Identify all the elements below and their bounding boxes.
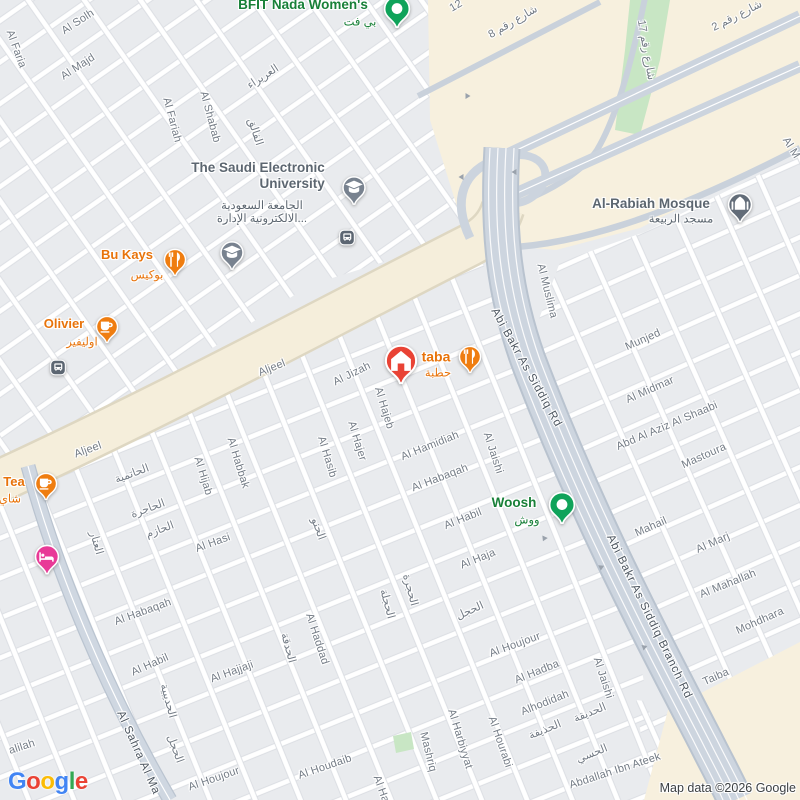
google-logo-letter: G <box>8 768 26 795</box>
google-logo-letter: g <box>55 768 69 795</box>
google-logo[interactable]: Google <box>8 768 88 796</box>
woosh-marker[interactable] <box>549 492 576 531</box>
map-attribution: Map data ©2026 Google <box>660 781 796 795</box>
al-rabiah-mosque-marker[interactable] <box>728 193 753 229</box>
taba-marker[interactable] <box>459 346 482 380</box>
tea-marker[interactable] <box>35 473 58 507</box>
map-canvas[interactable]: Al SolhAl MajdAl FariaAl FariahAl Shabab… <box>0 0 800 800</box>
saudi-electronic-university-label[interactable]: The Saudi ElectronicUniversity <box>191 160 325 192</box>
bu-kays-label[interactable]: Bu Kays <box>101 247 153 263</box>
olivier-label[interactable]: Olivier <box>44 316 84 332</box>
saudi-electronic-university-2-marker[interactable] <box>220 241 244 276</box>
google-logo-letter: e <box>75 768 88 795</box>
google-logo-letter: o <box>40 768 54 795</box>
roads-layer <box>0 0 800 800</box>
hotel-marker[interactable] <box>35 545 60 581</box>
bfit-nada-womens-marker[interactable] <box>384 0 411 34</box>
bfit-nada-womens-label[interactable]: BFIT Nada Women's <box>238 0 368 13</box>
attribution-text: Map data ©2026 Google <box>660 781 796 795</box>
olivier-marker[interactable] <box>96 316 119 350</box>
bu-kays-marker[interactable] <box>164 249 187 283</box>
google-logo-letter: o <box>26 768 40 795</box>
al-rabiah-mosque-label[interactable]: Al-Rabiah Mosque <box>592 196 710 212</box>
home-marker[interactable] <box>385 345 418 391</box>
woosh-label[interactable]: Woosh <box>492 495 537 511</box>
bus-station-1-marker[interactable] <box>339 230 355 251</box>
bus-station-2-marker[interactable] <box>50 360 66 381</box>
tea-label[interactable]: Tea <box>3 474 24 490</box>
saudi-electronic-university-marker[interactable] <box>342 176 366 211</box>
taba-label[interactable]: taba <box>422 349 451 366</box>
